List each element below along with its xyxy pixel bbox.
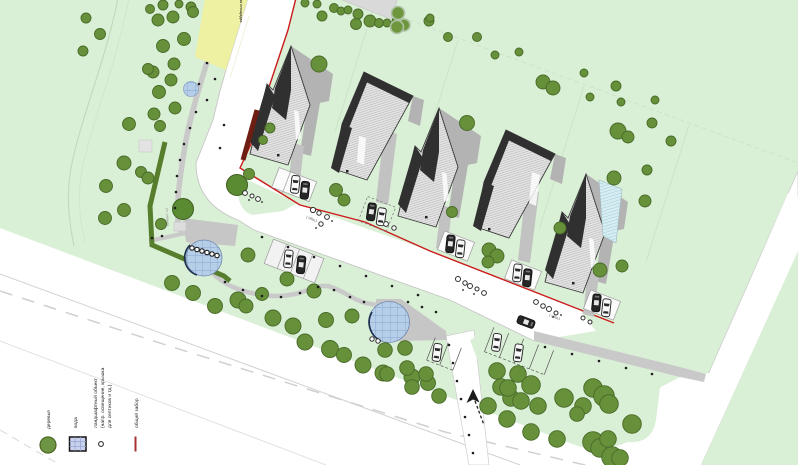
svg-text:вода: вода: [74, 417, 79, 428]
svg-text:для септиков и тд.): для септиков и тд.): [107, 384, 113, 428]
svg-text:общий забор: общий забор: [133, 398, 140, 428]
svg-text:ландшафтный объект: ландшафтный объект: [92, 377, 99, 428]
svg-text:игровая площадка: игровая площадка: [239, 0, 244, 23]
svg-text:(напр. освещение, крышка: (напр. освещение, крышка: [100, 367, 106, 428]
svg-text:деревья: деревья: [47, 410, 52, 429]
